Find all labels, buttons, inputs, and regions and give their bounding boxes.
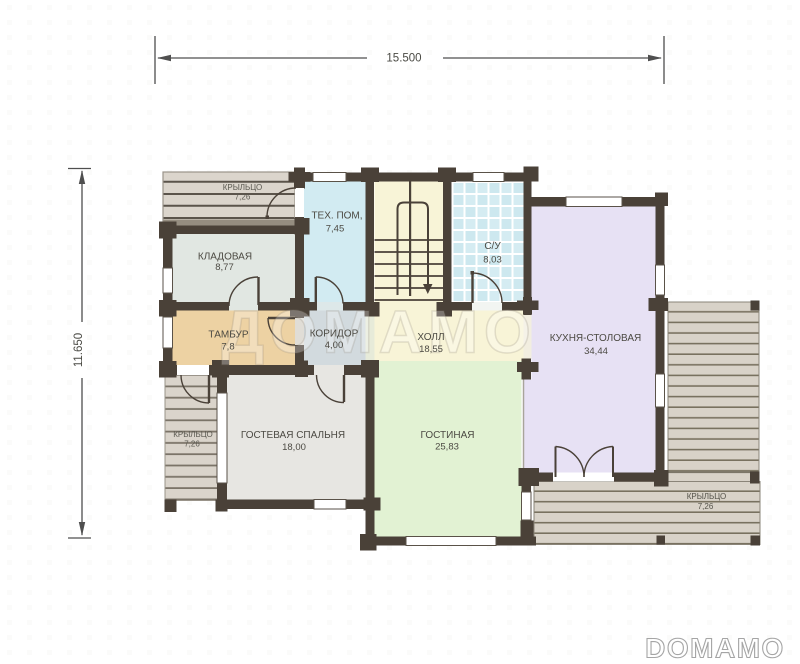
svg-text:КРЫЛЬЦО: КРЫЛЬЦО: [687, 492, 727, 501]
svg-text:ТЕХ. ПОМ,: ТЕХ. ПОМ,: [311, 211, 362, 222]
svg-text:КЛАДОВАЯ: КЛАДОВАЯ: [198, 252, 252, 263]
svg-text:КРЫЛЬЦО: КРЫЛЬЦО: [223, 183, 263, 192]
svg-text:4,00: 4,00: [325, 340, 344, 351]
svg-text:7,26: 7,26: [235, 193, 251, 202]
svg-text:8,77: 8,77: [215, 262, 234, 273]
svg-text:7,26: 7,26: [698, 502, 714, 511]
svg-text:7,8: 7,8: [221, 342, 234, 353]
svg-text:КРЫЛЬЦО: КРЫЛЬЦО: [173, 430, 213, 439]
svg-text:ДОМАМО: ДОМАМО: [221, 299, 536, 366]
svg-text:7,45: 7,45: [326, 224, 345, 235]
svg-text:С/У: С/У: [484, 241, 501, 252]
svg-text:7,26: 7,26: [184, 440, 200, 449]
svg-text:18,55: 18,55: [419, 344, 443, 355]
svg-text:8,03: 8,03: [483, 255, 502, 266]
svg-text:18,00: 18,00: [282, 442, 306, 453]
svg-text:34,44: 34,44: [584, 346, 608, 357]
svg-text:ХОЛЛ: ХОЛЛ: [417, 332, 444, 343]
svg-text:КУХНЯ-СТОЛОВАЯ: КУХНЯ-СТОЛОВАЯ: [550, 333, 642, 344]
svg-text:15.500: 15.500: [386, 53, 421, 65]
svg-text:25,83: 25,83: [435, 442, 459, 453]
svg-text:11.650: 11.650: [73, 333, 85, 367]
svg-text:DOMAMO: DOMAMO: [645, 633, 785, 664]
svg-text:ТАМБУР: ТАМБУР: [208, 330, 248, 341]
svg-text:ГОСТИНАЯ: ГОСТИНАЯ: [421, 430, 475, 441]
svg-text:ГОСТЕВАЯ СПАЛЬНЯ: ГОСТЕВАЯ СПАЛЬНЯ: [241, 430, 345, 441]
svg-text:КОРИДОР: КОРИДОР: [310, 329, 359, 340]
